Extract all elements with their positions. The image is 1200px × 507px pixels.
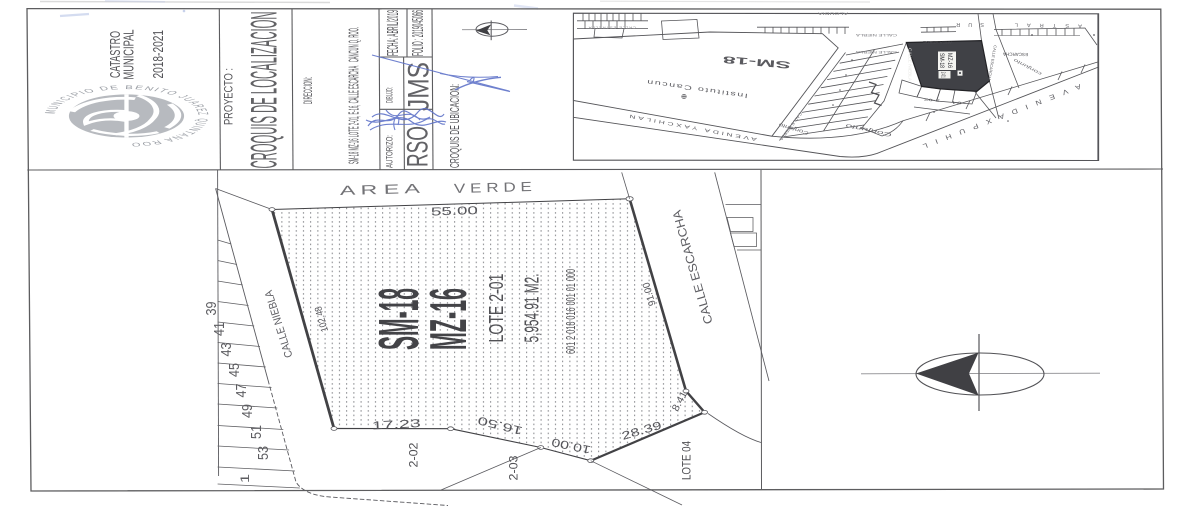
svg-text:FOLIO : 2019045066: FOLIO : 2019045066 (410, 10, 427, 56)
svg-text:1: 1 (238, 474, 252, 483)
svg-text:ESCARCHA: ESCARCHA (1002, 51, 1028, 57)
svg-text:MUNICIPAL: MUNICIPAL (120, 30, 137, 80)
svg-text:AREA VERDE: AREA VERDE (922, 40, 952, 45)
svg-text:51: 51 (248, 425, 265, 439)
svg-text:601 2 018 016 001 01 000: 601 2 018 016 001 01 000 (563, 269, 578, 354)
svg-text:MZ-16: MZ-16 (946, 53, 953, 68)
svg-text:DIBUJO:: DIBUJO: (384, 87, 395, 103)
svg-text:CROQUIS DE LOCALIZACION: CROQUIS DE LOCALIZACION (244, 12, 285, 169)
svg-text:55.00: 55.00 (431, 205, 479, 219)
svg-text:2018-2021: 2018-2021 (150, 30, 167, 79)
svg-text:39: 39 (203, 302, 220, 316)
svg-text:SM-18 MZ-16 LOTE 2-01, E-16, C: SM-18 MZ-16 LOTE 2-01, E-16, CALLE ESCAR… (346, 27, 362, 164)
svg-text:A R E A: A R E A (340, 181, 422, 198)
svg-text:ALCUDIA: ALCUDIA (818, 12, 848, 16)
svg-text:2-02: 2-02 (407, 442, 421, 467)
svg-text:CALLE NIEBLA: CALLE NIEBLA (908, 48, 913, 81)
svg-text:CALLE NIEBLA: CALLE NIEBLA (855, 50, 897, 54)
svg-text:53: 53 (255, 446, 272, 460)
svg-text:CALLE ESTRELLA: CALLE ESTRELLA (588, 26, 636, 30)
svg-text:45: 45 (226, 363, 243, 377)
svg-text:V E R D E: V E R D E (454, 179, 532, 196)
svg-text:MZ-16: MZ-16 (420, 288, 478, 350)
svg-text:SM-18: SM-18 (938, 53, 945, 68)
svg-text:S U R: S U R (953, 22, 984, 27)
svg-text:CALLE NIEBLA: CALLE NIEBLA (855, 33, 897, 37)
svg-text:5,954.91 M2.: 5,954.91 M2. (521, 274, 543, 343)
svg-text:AUTORIZO:: AUTORIZO: (384, 135, 395, 168)
svg-text:47: 47 (233, 384, 250, 398)
svg-text:2-03: 2-03 (507, 455, 521, 480)
svg-text:17.23: 17.23 (372, 417, 422, 432)
svg-text:CROQUIS DE UBICACION:: CROQUIS DE UBICACION: (448, 84, 462, 168)
svg-text:49: 49 (239, 404, 256, 418)
svg-text:43: 43 (218, 343, 235, 357)
svg-text:41: 41 (211, 322, 228, 336)
svg-text:FECHA: ABRIL/2019: FECHA: ABRIL/2019 (385, 10, 402, 56)
svg-text:2-01: 2-01 (940, 72, 946, 78)
svg-text:JMS: JMS (403, 62, 436, 111)
svg-text:DIRECCION:: DIRECCION: (301, 77, 315, 104)
svg-text:LOTE 2-01: LOTE 2-01 (486, 274, 508, 343)
svg-text:LOTE 04: LOTE 04 (680, 441, 694, 480)
svg-text:04: 04 (951, 101, 962, 105)
svg-text:RSO: RSO (402, 126, 435, 167)
svg-text:PROYECTO :: PROYECTO : (222, 68, 236, 125)
